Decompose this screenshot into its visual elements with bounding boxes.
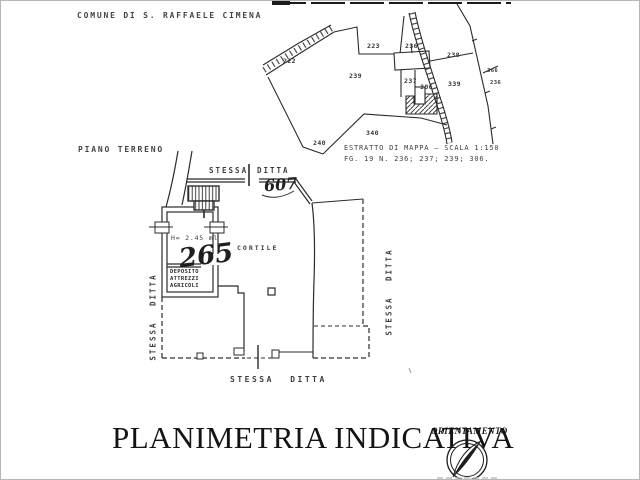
deposito-label-2: ATTREZZI [170, 276, 199, 283]
commune-header: COMUNE DI S. RAFFAELE CIMENA [77, 11, 262, 20]
parcel-label: 238 [447, 51, 460, 59]
floor-label: PIANO TERRENO [78, 145, 164, 154]
drawing-linework [1, 1, 640, 480]
parcel-label: 239 [349, 72, 362, 80]
boundary-right-label: STESSA DITTA [385, 248, 394, 335]
parcel-label: 339 [448, 80, 461, 88]
handwritten-number-top: 607 [263, 174, 298, 196]
scan-artifact-top [272, 1, 511, 5]
parcel-label: 236 [490, 80, 501, 86]
deposito-label-1: DEPOSITO [170, 269, 199, 276]
map-caption-title: ESTRATTO DI MAPPA — SCALA 1:150 [344, 144, 499, 152]
boundary-left-label: STESSA DITTA [149, 273, 158, 360]
parcel-label: 366 [487, 68, 498, 74]
parcel-label: 240 [313, 139, 326, 147]
map-caption-sheet: FG. 19 N. 236; 237; 239; 306. [344, 155, 489, 163]
deposito-label-3: AGRICOLI [170, 283, 199, 290]
scanned-planimetry-page: COMUNE DI S. RAFFAELE CIMENA 222 223 236… [0, 0, 640, 480]
boundary-bottom-label: STESSA DITTA [230, 375, 327, 384]
map-extract-drawing [263, 4, 498, 154]
parcel-label: 223 [367, 42, 380, 50]
parcel-label: 306 [420, 83, 433, 91]
parcel-label: 236 [405, 42, 418, 50]
boundary-top-label-1: STESSA [209, 166, 248, 175]
parcel-label: 222 [283, 57, 296, 65]
courtyard-label: CORTILE [237, 244, 278, 252]
parcel-label: 237 [404, 77, 417, 85]
parcel-label: 340 [366, 129, 379, 137]
orientation-label: ORIENTAMENTO [431, 426, 508, 436]
